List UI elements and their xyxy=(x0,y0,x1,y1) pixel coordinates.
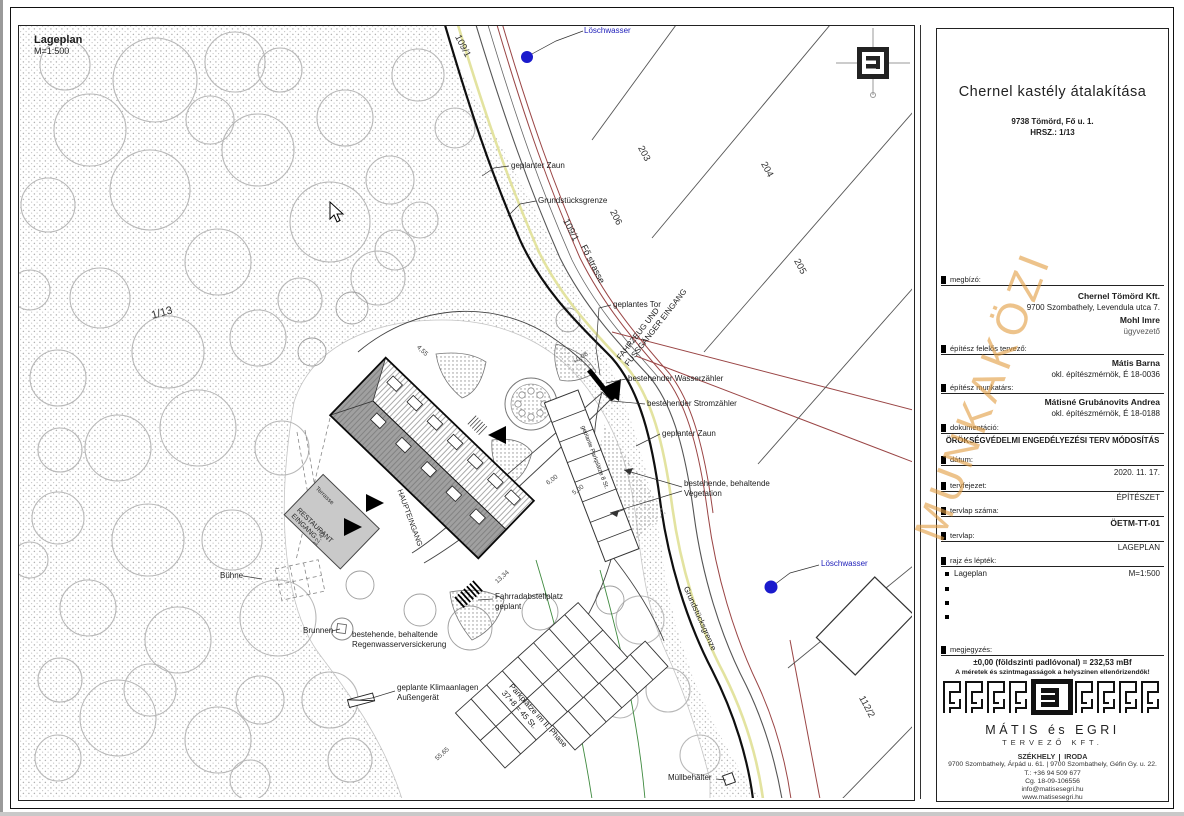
tervlap-szama-value: ÖETM-TT-01 xyxy=(1110,518,1160,528)
datum-value: 2020. 11. 17. xyxy=(1114,468,1160,477)
label-vegetation-block: bestehende, behaltende Vegetation xyxy=(684,479,770,498)
label-fahrrad-1: Fahrradabstellplatz xyxy=(495,592,563,602)
field-marker xyxy=(941,456,946,464)
office-label: IRODA xyxy=(1064,752,1087,761)
tervezo-name: Mátis Barna xyxy=(1112,358,1160,368)
hq-label: SZÉKHELY xyxy=(1018,752,1056,761)
list-bullet xyxy=(945,601,949,605)
megbizo-contact: Mohl Imre xyxy=(1120,315,1160,325)
field-tervfejezet: tervfejezet: xyxy=(941,481,1164,492)
company-web: www.matisesegri.hu xyxy=(937,794,1168,803)
plan-scale: M=1:500 xyxy=(34,46,82,56)
drawing-sheet: Lageplan M=1:500 Löschwasser geplanter Z… xyxy=(0,0,1184,816)
field-marker xyxy=(941,384,946,392)
field-marker xyxy=(941,532,946,540)
label-klima-block: geplante Klimaanlagen Außengerät xyxy=(397,683,478,702)
megbizo-name: Chernel Tömörd Kft. xyxy=(1078,291,1160,301)
note-level: ±0,00 (földszinti padlóvonal) = 232,53 m… xyxy=(945,658,1160,667)
maze-pattern-left xyxy=(941,680,1029,714)
field-marker xyxy=(941,276,946,284)
dokumentacio-value: ÖRÖKSÉGVÉDELMI ENGEDÉLYEZÉSI TERV MÓDOSÍ… xyxy=(945,436,1160,445)
field-tervezo: építész felelős tervező: xyxy=(941,344,1164,355)
field-dokumentacio-label: dokumentáció: xyxy=(950,423,999,432)
field-munkatars-label: építész munkatárs: xyxy=(950,383,1013,392)
megbizo-address: 9700 Szombathely, Levendula utca 7. xyxy=(1027,303,1160,312)
drawing-list-item: Lageplan xyxy=(954,569,987,578)
label-loeschwasser-top: Löschwasser xyxy=(584,26,631,36)
label-klima-1: geplante Klimaanlagen xyxy=(397,683,478,693)
field-tervlap-szama: tervlap száma: xyxy=(941,506,1164,517)
munkatars-name: Mátisné Grubánovits Andrea xyxy=(1045,397,1160,407)
plan-corner-label: Lageplan M=1:500 xyxy=(34,34,82,56)
company-address: 9700 Szombathely, Árpád u. 61. | 9700 Sz… xyxy=(937,761,1168,770)
drawing-list-scale: M=1:500 xyxy=(1129,569,1160,578)
label-wasserzaehler: bestehender Wasserzähler xyxy=(628,374,723,384)
company-name: MÁTIS és EGRI xyxy=(937,723,1168,737)
field-marker xyxy=(941,424,946,432)
title-block: Chernel kastély átalakítása 9738 Tömörd,… xyxy=(936,28,1169,802)
field-marker xyxy=(941,557,946,565)
tervlap-value: LAGEPLAN xyxy=(1118,543,1160,552)
label-loeschwasser-bottom: Löschwasser xyxy=(821,559,868,569)
field-marker xyxy=(941,646,946,654)
company-logo-band xyxy=(941,679,1172,715)
munkatars-title: okl. építészmérnök, É 18-0188 xyxy=(1051,409,1160,418)
field-megjegyzes-label: megjegyzés: xyxy=(950,645,992,654)
plan-title-divider xyxy=(920,25,921,799)
label-geplanter-zaun-1: geplanter Zaun xyxy=(511,161,565,171)
project-address: 9738 Tömörd, Fő u. 1. xyxy=(937,117,1168,128)
field-marker xyxy=(941,345,946,353)
field-munkatars: építész munkatárs: xyxy=(941,383,1164,394)
field-megbizo: megbízó: xyxy=(941,275,1164,286)
project-hrsz: HRSZ.: 1/13 xyxy=(937,128,1168,139)
me-monogram xyxy=(1031,679,1073,715)
field-rajz-label: rajz és lépték: xyxy=(950,556,996,565)
maze-pattern-right xyxy=(1075,680,1163,714)
field-tervfejezet-label: tervfejezet: xyxy=(950,481,987,490)
list-bullet xyxy=(945,572,949,576)
field-tervlap-label: tervlap: xyxy=(950,531,975,540)
field-marker xyxy=(941,482,946,490)
field-megjegyzes: megjegyzés: xyxy=(941,645,1164,656)
project-title: Chernel kastély átalakítása xyxy=(937,84,1168,100)
note-check: A méretek és szintmagasságok a helyszíne… xyxy=(945,669,1160,676)
tervfejezet-value: ÉPÍTÉSZET xyxy=(1116,493,1160,502)
field-tervlap-szama-label: tervlap száma: xyxy=(950,506,999,515)
field-tervlap: tervlap: xyxy=(941,531,1164,542)
label-klima-2: Außengerät xyxy=(397,693,478,703)
label-grundstuecksgrenze-1: Grundstücksgrenze xyxy=(538,196,607,206)
tervezo-title: okl. építészmérnök, É 18-0036 xyxy=(1051,370,1160,379)
list-bullet xyxy=(945,615,949,619)
label-muell: Müllbehälter xyxy=(668,773,712,783)
label-vegetation-1: bestehende, behaltende xyxy=(684,479,770,489)
megbizo-role: ügyvezető xyxy=(1124,327,1160,336)
label-stromzaehler: bestehender Stromzähler xyxy=(647,399,737,409)
label-brunnen: Brunnen xyxy=(303,626,333,636)
field-datum: dátum: xyxy=(941,455,1164,466)
label-buehne: Bühne xyxy=(220,571,243,581)
field-megbizo-label: megbízó: xyxy=(950,275,981,284)
divider xyxy=(1059,754,1060,761)
field-marker xyxy=(941,507,946,515)
label-regenwasser-2: Regenwasserversickerung xyxy=(352,640,446,650)
company-locations-header: SZÉKHELYIRODA xyxy=(937,752,1168,761)
field-datum-label: dátum: xyxy=(950,455,973,464)
field-tervezo-label: építész felelős tervező: xyxy=(950,344,1027,353)
label-regenwasser-block: bestehende, behaltende Regenwasserversic… xyxy=(352,630,446,649)
plan-title: Lageplan xyxy=(34,34,82,46)
label-regenwasser-1: bestehende, behaltende xyxy=(352,630,446,640)
company-type: TERVEZŐ KFT. xyxy=(937,738,1168,747)
list-bullet xyxy=(945,587,949,591)
label-vegetation-2: Vegetation xyxy=(684,489,770,499)
field-dokumentacio: dokumentáció: xyxy=(941,423,1164,434)
label-fahrrad-block: Fahrradabstellplatz geplant xyxy=(495,592,563,611)
field-rajz: rajz és lépték: xyxy=(941,556,1164,567)
label-geplanter-zaun-2: geplanter Zaun xyxy=(662,429,716,439)
label-fahrrad-2: geplant xyxy=(495,602,563,612)
drawing-list-row: Lageplan M=1:500 xyxy=(945,569,1160,578)
